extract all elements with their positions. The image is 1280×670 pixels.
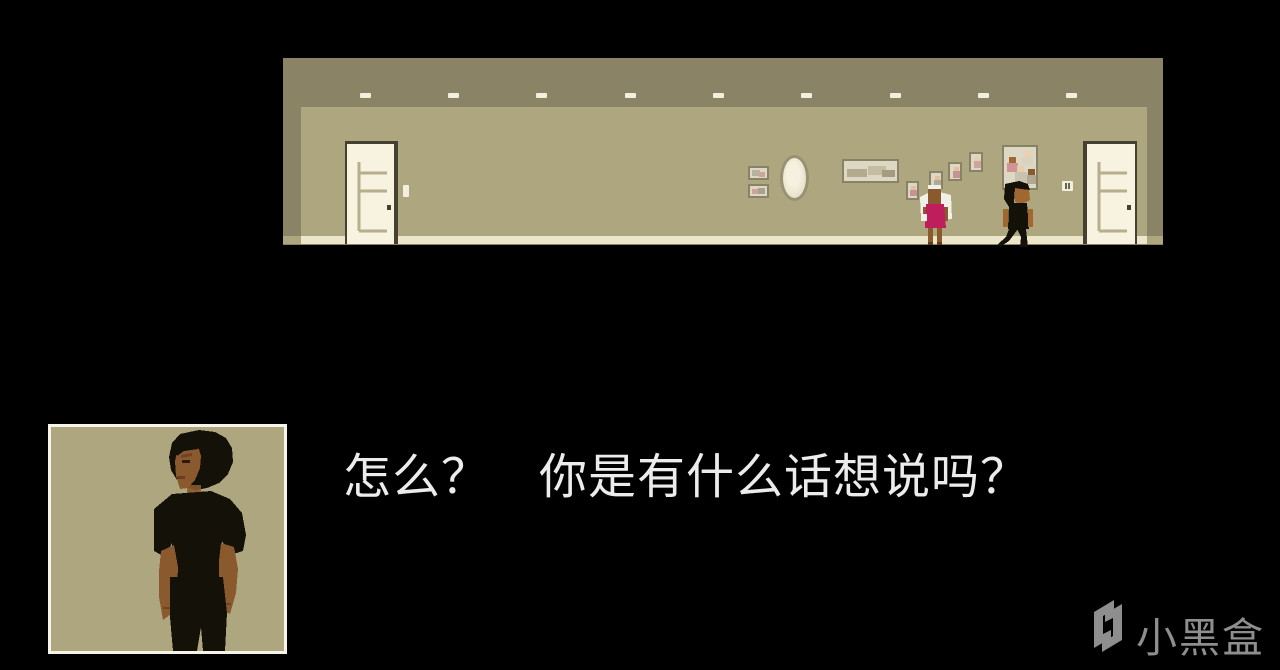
door-left[interactable] <box>345 141 398 244</box>
npc-man-walking <box>997 181 1037 254</box>
ceiling-light <box>536 93 547 98</box>
door-right[interactable] <box>1083 141 1137 244</box>
portrait-frame-3 <box>948 162 962 181</box>
door-panel-grooves <box>1087 144 1134 244</box>
small-picture-top <box>748 166 769 180</box>
door-panel-grooves <box>347 144 394 244</box>
portrait-frame-4 <box>969 152 983 172</box>
ceiling-light <box>978 93 989 98</box>
npc-girl-pink-dress <box>918 185 952 250</box>
small-picture-bottom <box>748 184 769 198</box>
door-knob <box>387 205 391 210</box>
ceiling-light <box>448 93 459 98</box>
watermark-brand-text: 小黑盒 <box>1136 604 1265 664</box>
ceiling-light <box>890 93 901 98</box>
floor-edge-right <box>1147 236 1163 244</box>
ceiling-light <box>1066 93 1077 98</box>
light-switch-right[interactable] <box>1062 181 1073 191</box>
ceiling-light <box>360 93 371 98</box>
oval-mirror <box>780 155 809 201</box>
portrait-woman-image <box>51 427 284 651</box>
wide-landscape-picture <box>842 159 899 183</box>
dialogue-speaker-portrait <box>48 424 287 654</box>
light-switch-left[interactable] <box>403 185 409 197</box>
hallway-scene <box>283 58 1163 245</box>
ceiling-light <box>713 93 724 98</box>
heybox-logo-icon <box>1090 600 1126 657</box>
ceiling-light <box>801 93 812 98</box>
game-viewport[interactable]: 怎么？ 你是有什么话想说吗？ 小黑盒 <box>0 0 1280 670</box>
floor-edge-left <box>283 236 301 244</box>
dialogue-text[interactable]: 怎么？ 你是有什么话想说吗？ <box>343 448 1083 508</box>
ceiling-light <box>625 93 636 98</box>
door-knob <box>1127 205 1131 210</box>
